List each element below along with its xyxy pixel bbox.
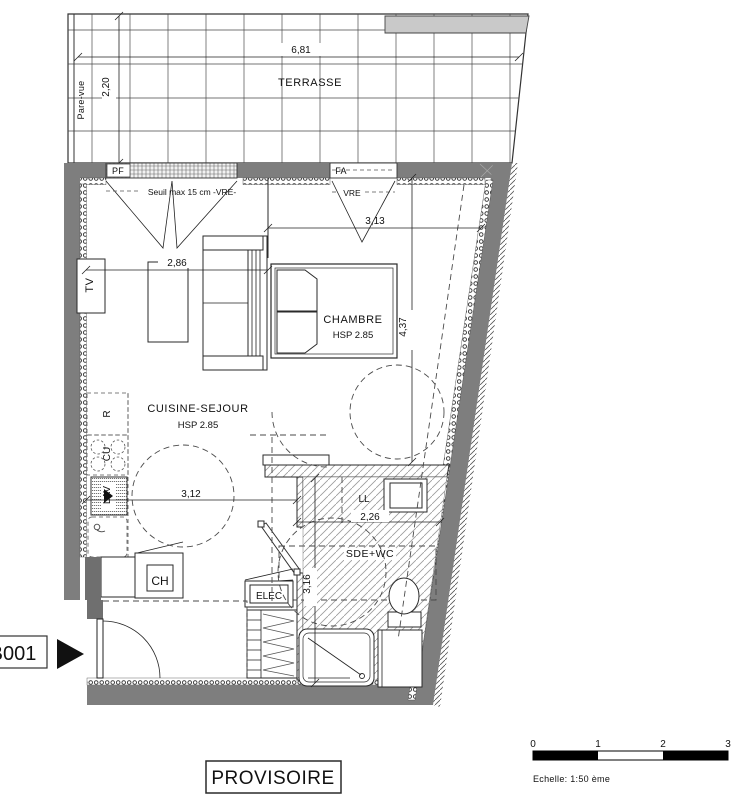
- scale-tick-3: 3: [725, 739, 731, 750]
- wardrobe: [247, 610, 297, 678]
- dim-chambre-h: 4,37: [398, 317, 409, 337]
- stamp: PROVISOIRE: [206, 761, 341, 793]
- sofa: [203, 236, 267, 370]
- dim-chambre-w: 3,13: [365, 216, 385, 227]
- scale-caption: Echelle: 1:50 ème: [533, 774, 610, 784]
- terrace: 6,81 2,20 Pare-vue TERRASSE: [68, 12, 529, 167]
- stamp-label: PROVISOIRE: [211, 768, 334, 789]
- shower: [299, 629, 374, 686]
- window-pf: PF Seuil max 15 cm -VRE-: [106, 163, 237, 248]
- fridge-label: R: [102, 410, 113, 417]
- sde-label: SDE+WC: [346, 548, 394, 560]
- scale-tick-2: 2: [660, 739, 666, 750]
- floorplan-drawing: 6,81 2,20 Pare-vue TERRASSE: [0, 0, 754, 800]
- window-pf-label: PF: [112, 166, 124, 176]
- dim-sde-h: 3,16: [302, 574, 313, 594]
- pillow: [277, 270, 317, 311]
- unit-label: B001: [0, 643, 36, 665]
- right-wall-outer-hatch: [433, 163, 518, 707]
- washbasin: [378, 630, 422, 687]
- seuil-note: Seuil max 15 cm -VRE-: [148, 187, 236, 197]
- unit-arrow-icon: [57, 639, 84, 669]
- toilet: [388, 578, 421, 627]
- sink: [88, 517, 127, 557]
- scale-tick-0: 0: [530, 739, 536, 750]
- hob-label: CU: [102, 447, 113, 461]
- terrace-planter: [385, 16, 529, 33]
- window-fa: FA VRE: [330, 163, 397, 242]
- cuisine-hsp: HSP 2.85: [178, 420, 219, 431]
- entry-zone-dashed: [103, 601, 247, 677]
- boiler: [101, 542, 183, 598]
- dim-sde-w: 2,26: [360, 512, 380, 523]
- unit-tag: B001: [0, 636, 84, 669]
- fa-casement-swing: [332, 181, 395, 242]
- terrace-depth-value: 2,20: [101, 77, 112, 97]
- chambre-hsp: HSP 2.85: [333, 330, 374, 341]
- terrace-label: TERRASSE: [278, 77, 342, 89]
- elec-label: ELEC: [256, 591, 282, 602]
- kitchen-pillar: [85, 557, 101, 600]
- dishwasher-label: LAV: [102, 486, 113, 504]
- bed: [271, 264, 397, 358]
- pillow: [277, 312, 317, 353]
- floorplan-page: 6,81 2,20 Pare-vue TERRASSE: [0, 0, 754, 800]
- dim-sejour-w: 2,86: [167, 258, 187, 269]
- scale-bar: 0 1 2 3 Echelle: 1:50 ème: [530, 739, 731, 784]
- tv-label: TV: [84, 277, 96, 292]
- window-fa-label: FA: [335, 166, 347, 176]
- elec-cabinet: ELEC: [245, 569, 293, 607]
- cuisine-label: CUISINE-SEJOUR: [147, 403, 248, 415]
- scale-tick-1: 1: [595, 739, 601, 750]
- washer-label: LL: [358, 494, 370, 505]
- pare-vue-label: Pare-vue: [76, 81, 86, 120]
- kitchen: R CU LAV CH: [85, 393, 183, 600]
- table: [148, 262, 188, 342]
- chambre-label: CHAMBRE: [323, 314, 382, 326]
- living-furniture: TV: [77, 236, 267, 370]
- terrace-width-value: 6,81: [291, 45, 311, 56]
- entry-door: [97, 601, 247, 678]
- dim-kitchen-w: 3,12: [181, 489, 201, 500]
- boiler-label: CH: [151, 574, 168, 588]
- fa-vre-label: VRE: [343, 188, 361, 198]
